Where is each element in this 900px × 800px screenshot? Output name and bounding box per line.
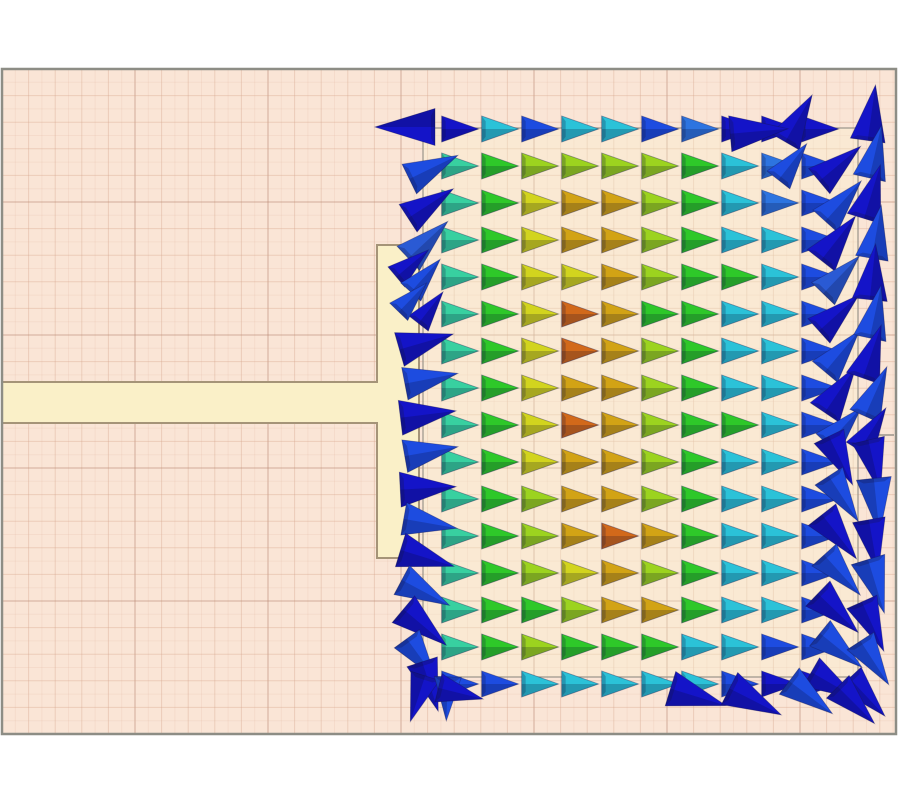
field-plot-scene <box>0 0 900 800</box>
simulation-viewport[interactable] <box>0 0 900 800</box>
